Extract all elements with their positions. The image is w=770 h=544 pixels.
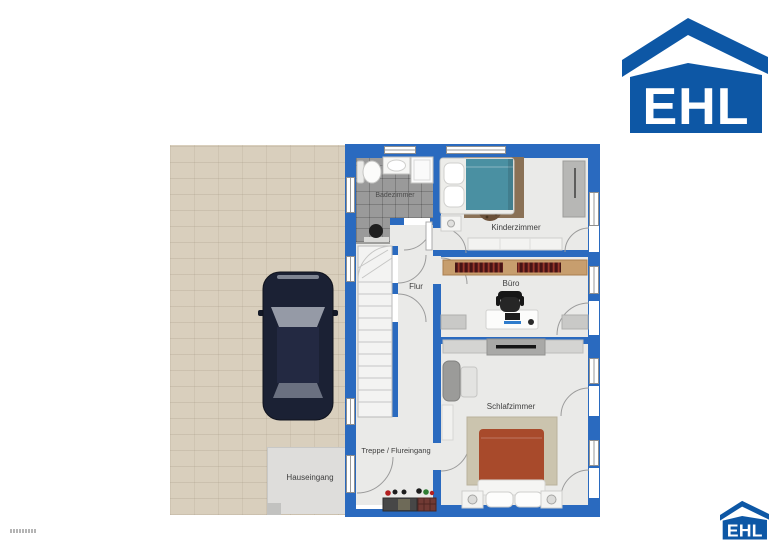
room-label-buero: Büro bbox=[503, 279, 520, 288]
floorplan-page: Badezimmer Kinderzimmer Flur Büro Schlaf… bbox=[0, 0, 770, 544]
car bbox=[258, 272, 338, 420]
door-swing-arc bbox=[398, 255, 426, 283]
bed-pillow bbox=[515, 492, 542, 507]
room-label-hauseingang: Hauseingang bbox=[286, 473, 333, 482]
car-grille bbox=[277, 275, 319, 279]
room-label-badezimmer: Badezimmer bbox=[375, 192, 414, 199]
car-roof bbox=[277, 327, 319, 383]
double-bed-duvet bbox=[479, 429, 544, 485]
books bbox=[517, 263, 561, 273]
nightstand-lamp bbox=[468, 495, 477, 504]
sink-basin bbox=[388, 160, 406, 171]
armchair bbox=[443, 361, 460, 401]
kids-dresser bbox=[468, 238, 562, 250]
books bbox=[455, 263, 503, 273]
kids-bed-pillow bbox=[444, 163, 464, 184]
door-leaf-badezimmer bbox=[426, 222, 432, 250]
car-rear-window bbox=[273, 383, 323, 398]
office-chair-armrest bbox=[520, 296, 524, 306]
room-label-flur: Flur bbox=[409, 282, 423, 291]
room-label-treppe-flureingang: Treppe / Flureingang bbox=[361, 446, 430, 455]
watermark-smudge bbox=[10, 529, 36, 533]
nightstand-lamp bbox=[547, 495, 556, 504]
schlafzimmer-furniture bbox=[442, 339, 583, 508]
door-swing-arc bbox=[441, 228, 466, 253]
office-cabinet bbox=[562, 315, 588, 329]
door-swing-arc bbox=[561, 388, 589, 416]
car-windshield bbox=[271, 307, 325, 327]
office-chair-armrest bbox=[496, 296, 500, 306]
door-swing-arc bbox=[561, 470, 589, 498]
ehl-logo-text: EHL bbox=[643, 78, 750, 134]
flureingang-furniture bbox=[383, 488, 436, 511]
ehl-logo-small bbox=[720, 498, 769, 542]
toilet-bowl bbox=[363, 161, 381, 183]
staircase bbox=[358, 246, 392, 417]
bath-stool bbox=[369, 224, 383, 238]
room-label-schlafzimmer: Schlafzimmer bbox=[487, 402, 535, 411]
desk-blue-item bbox=[504, 321, 521, 324]
bed-pillow bbox=[486, 492, 513, 507]
laptop bbox=[505, 313, 520, 320]
office-chair-seat bbox=[500, 297, 520, 312]
door-swing-arc bbox=[565, 228, 589, 252]
badezimmer-furniture bbox=[357, 157, 433, 242]
ottoman bbox=[461, 367, 477, 397]
room-label-kinderzimmer: Kinderzimmer bbox=[491, 223, 540, 232]
buero-furniture bbox=[441, 260, 588, 329]
tv bbox=[496, 345, 536, 349]
door-swing-arc bbox=[441, 443, 469, 471]
kids-duvet-shade bbox=[508, 159, 513, 210]
kids-wardrobe bbox=[563, 161, 585, 217]
office-cabinet bbox=[441, 315, 466, 329]
wall-shelf bbox=[442, 405, 453, 440]
door-swing-arc bbox=[357, 457, 393, 493]
shoes bbox=[385, 488, 434, 496]
door-swing-arc bbox=[398, 294, 426, 322]
shoe-cabinet-panel bbox=[398, 499, 410, 510]
mouse bbox=[528, 319, 534, 325]
kids-bed-pillow bbox=[444, 186, 464, 207]
kinderzimmer-furniture bbox=[440, 157, 585, 250]
ehl-logo: EHL bbox=[622, 16, 768, 134]
kids-nightstand-knob bbox=[448, 220, 455, 227]
